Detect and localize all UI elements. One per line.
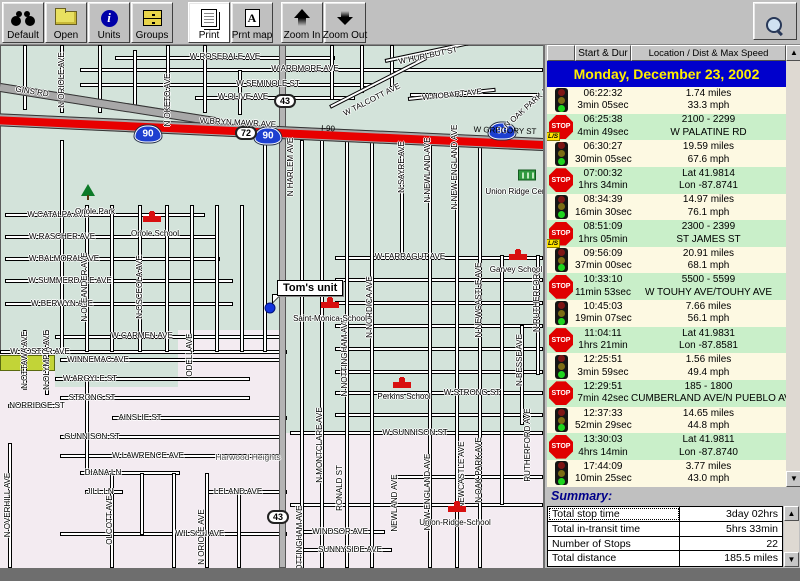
street bbox=[370, 140, 374, 568]
street-label: RUTHERFORD AVE bbox=[524, 408, 532, 481]
street-label: N NEWCASTLE AVE bbox=[475, 263, 483, 338]
street-label: N NOTTINGHAM AVE bbox=[296, 506, 304, 568]
street bbox=[240, 205, 244, 352]
street bbox=[263, 140, 267, 352]
traffic-light-icon bbox=[555, 301, 568, 325]
street-label: W ARGYLE ST bbox=[63, 375, 117, 383]
event-time-duration: 07:00:321hrs 34min bbox=[575, 168, 631, 193]
event-time-duration: 12:37:3352min 29sec bbox=[575, 408, 631, 433]
summary-row-value: 22 bbox=[680, 537, 782, 551]
event-location-speed: 20.91 miles68.1 mph bbox=[631, 248, 786, 273]
stop-event-row[interactable]: STOP10:33:1011min 53sec5500 - 5599W TOUH… bbox=[547, 273, 786, 300]
street bbox=[237, 490, 241, 568]
summary-row: Total stop time3day 02hrs bbox=[548, 507, 782, 522]
street bbox=[190, 205, 194, 352]
park-tree-icon bbox=[81, 184, 95, 200]
event-location-speed: 19.59 miles67.6 mph bbox=[631, 141, 786, 166]
event-location-speed: Lat 41.9831Lon -87.8581 bbox=[631, 328, 786, 353]
scroll-down-button[interactable]: ▼ bbox=[786, 471, 800, 487]
route-badge: 43 bbox=[274, 94, 296, 108]
event-time-duration: 10:45:0319min 07sec bbox=[575, 301, 631, 326]
stop-event-row[interactable]: STOP07:00:321hrs 34minLat 41.9814Lon -87… bbox=[547, 167, 786, 194]
street-label: W OLIVE AVE bbox=[218, 93, 269, 101]
street-label: Harwood Heights bbox=[215, 453, 280, 461]
event-time-duration: 11:04:111hrs 21min bbox=[575, 328, 631, 353]
street-label: NEWLAND AVE bbox=[391, 474, 399, 531]
event-time-duration: 06:30:2730min 05sec bbox=[575, 141, 631, 166]
street-label: STRONG ST bbox=[69, 394, 116, 402]
date-header: Monday, December 23, 2002 bbox=[547, 61, 786, 87]
transit-event-row[interactable]: 08:34:3916min 30sec14.97 miles76.1 mph bbox=[547, 194, 786, 221]
event-time-duration: 10:33:1011min 53sec bbox=[575, 274, 631, 299]
street-label: N OTTAWA AVE bbox=[21, 331, 29, 389]
interstate-90-shield: 90 bbox=[255, 128, 282, 145]
street-label: N ORIOLE AVE bbox=[58, 52, 66, 107]
summary-scroll-down-button[interactable]: ▼ bbox=[784, 552, 799, 567]
event-location-speed: 14.65 miles44.8 mph bbox=[631, 408, 786, 433]
zoom-out-button[interactable]: Zoom Out bbox=[324, 2, 366, 43]
school-door bbox=[401, 384, 403, 387]
event-time-duration: 09:56:0937min 00sec bbox=[575, 248, 631, 273]
event-time-duration: 06:22:323min 05sec bbox=[575, 88, 631, 113]
stop-sign-icon: STOP bbox=[549, 381, 573, 405]
street-label: AINSLIE ST bbox=[118, 414, 161, 422]
major-road bbox=[279, 45, 286, 568]
stop-event-row[interactable]: STOP11:04:111hrs 21minLat 41.9831Lon -87… bbox=[547, 327, 786, 354]
street bbox=[290, 503, 543, 507]
street bbox=[335, 391, 543, 395]
school-door bbox=[151, 218, 153, 221]
poi-label: Garvey School bbox=[490, 266, 542, 274]
street-label: W LAWRENCE AVE bbox=[112, 452, 184, 460]
street bbox=[300, 140, 304, 568]
event-location-speed: 7.66 miles56.1 mph bbox=[631, 301, 786, 326]
toolbar-button-label: Open bbox=[54, 30, 78, 41]
default-button[interactable]: Default bbox=[2, 2, 44, 43]
street bbox=[335, 347, 543, 351]
groups-button[interactable]: Groups bbox=[131, 2, 173, 43]
street bbox=[500, 255, 504, 505]
street bbox=[335, 413, 543, 417]
interstate-90-shield: 90 bbox=[135, 126, 162, 143]
event-location-speed: 1.74 miles33.3 mph bbox=[631, 88, 786, 113]
stop-sign-icon: STOP bbox=[549, 168, 573, 192]
event-location-speed: 2100 - 2299W PALATINE RD bbox=[631, 114, 786, 139]
summary-row-label: Total stop time bbox=[548, 507, 680, 521]
event-location-speed: 5500 - 5599W TOUHY AVE/TOUHY AVE bbox=[631, 274, 786, 299]
event-location-speed: 3.77 miles43.0 mph bbox=[631, 461, 786, 486]
traffic-light-icon bbox=[555, 461, 568, 485]
street-label: N OSCEOLA AVE bbox=[136, 255, 144, 318]
street-label: NEWCASTLE AVE bbox=[458, 442, 466, 509]
street-label: W ARDMORE AVE bbox=[271, 65, 338, 73]
street-label: N RUTHERFORD bbox=[533, 268, 541, 332]
street bbox=[60, 140, 64, 352]
street bbox=[335, 370, 543, 374]
street-label: N SAYRE AVE bbox=[398, 141, 406, 193]
event-location-speed: 185 - 1800CUMBERLAND AVE/N PUEBLO AV bbox=[631, 381, 786, 406]
event-location-speed: 14.97 miles76.1 mph bbox=[631, 194, 786, 219]
magnifier-icon bbox=[766, 17, 784, 35]
event-location-speed: 1.56 miles49.4 mph bbox=[631, 354, 786, 379]
street bbox=[172, 473, 176, 568]
transit-event-row[interactable]: 10:45:0319min 07sec7.66 miles56.1 mph bbox=[547, 300, 786, 327]
zoomin-icon bbox=[294, 9, 310, 27]
event-time-duration: 06:25:384min 49sec bbox=[575, 114, 631, 139]
street bbox=[390, 45, 394, 87]
event-time-duration: 12:29:517min 42sec bbox=[575, 381, 631, 406]
street-label: N NOTTINGHAM AVE bbox=[341, 318, 349, 397]
street-label: LELAND AVE bbox=[214, 488, 262, 496]
street-label: WINDSOR AVE bbox=[312, 528, 368, 536]
summary-row-label: Total in-transit time bbox=[548, 522, 680, 536]
info-icon: i bbox=[101, 10, 118, 27]
traffic-light-icon bbox=[555, 195, 568, 219]
stop-sign-icon: STOP bbox=[549, 435, 573, 459]
toolbar-button-label: Groups bbox=[136, 30, 169, 41]
street-label: N NEW ENGLAND AVE bbox=[451, 125, 459, 210]
event-location-speed: 2300 - 2399ST JAMES ST bbox=[631, 221, 786, 246]
toolbar-button-label: Prnt map bbox=[232, 30, 273, 41]
stop-sign-icon: STOP bbox=[549, 328, 573, 352]
event-time-duration: 08:51:091hrs 05min bbox=[575, 221, 631, 246]
street-label: W CARMEN AVE bbox=[111, 332, 173, 340]
poi-label: Perkins School bbox=[377, 393, 430, 401]
street bbox=[360, 45, 364, 93]
street-label: W SUMMERDALE AVE bbox=[28, 277, 111, 285]
toolbar-button-label: Zoom In bbox=[284, 30, 321, 41]
scroll-up-button[interactable]: ▲ bbox=[786, 45, 800, 61]
column-header-icon[interactable] bbox=[547, 45, 575, 61]
binoculars-icon bbox=[11, 10, 35, 26]
street-label: OLCOTT AVE bbox=[106, 495, 114, 545]
toolbar: DefaultOpeniUnitsGroupsPrintAPrnt mapZoo… bbox=[0, 0, 800, 45]
street bbox=[165, 205, 169, 352]
street-label: N OAK PARK AVE bbox=[503, 80, 543, 130]
route-badge: 43 bbox=[267, 510, 289, 524]
street-label: W ROSEDALE AVE bbox=[190, 53, 261, 61]
street-label: N OVERHILL AVE bbox=[4, 473, 12, 537]
school-icon bbox=[143, 210, 161, 222]
summary-row-value: 185.5 miles bbox=[680, 551, 782, 566]
traffic-light-icon bbox=[555, 408, 568, 432]
summary-scrollbar-track[interactable] bbox=[784, 521, 799, 552]
limited-stop-badge: L/S bbox=[547, 239, 560, 248]
traffic-light-icon bbox=[555, 248, 568, 272]
street-label: W GUNNISON ST bbox=[382, 429, 447, 437]
street-label: RONALD ST bbox=[336, 465, 344, 511]
street-label: W STRONG ST bbox=[444, 389, 500, 397]
event-time-duration: 08:34:3916min 30sec bbox=[575, 194, 631, 219]
street-label: W RASCHER AVE bbox=[29, 233, 95, 241]
vehicle-tracking-app-window: DefaultOpeniUnitsGroupsPrintAPrnt mapZoo… bbox=[0, 0, 800, 581]
event-time-duration: 12:25:513min 59sec bbox=[575, 354, 631, 379]
street-label: DIANA LN bbox=[85, 469, 121, 477]
event-list: 06:22:323min 05sec1.74 miles33.3 mphSTOP… bbox=[547, 87, 786, 487]
event-location-speed: Lat 41.9811Lon -87.8740 bbox=[631, 434, 786, 459]
street bbox=[478, 140, 482, 568]
school-door bbox=[456, 508, 458, 511]
street-label: I-90 bbox=[321, 125, 335, 134]
limited-stop-badge: L/S bbox=[547, 132, 560, 141]
street-label: N NORDICA AVE bbox=[366, 276, 374, 338]
street-label: N MONTCLARE AVE bbox=[316, 407, 324, 482]
street-label: W SEMINOLE ST bbox=[236, 80, 300, 88]
summary-row-value: 5hrs 33min bbox=[680, 522, 782, 536]
school-icon bbox=[448, 500, 466, 512]
summary-row: Total distance185.5 miles bbox=[548, 551, 782, 566]
school-door bbox=[329, 304, 331, 307]
traffic-light-icon bbox=[555, 88, 568, 112]
map-view[interactable]: 909090724343 W ROSEDALE AVEW ARDMORE AVE… bbox=[0, 45, 543, 568]
stop-event-row[interactable]: STOPL/S08:51:091hrs 05min2300 - 2399ST J… bbox=[547, 220, 786, 247]
open-button[interactable]: Open bbox=[45, 2, 87, 43]
event-location-speed: Lat 41.9814Lon -87.8741 bbox=[631, 168, 786, 193]
transit-event-row[interactable]: 09:56:0937min 00sec20.91 miles68.1 mph bbox=[547, 247, 786, 274]
street bbox=[85, 375, 89, 475]
zoom-in-button[interactable]: Zoom In bbox=[281, 2, 323, 43]
column-header-location[interactable]: Location / Dist & Max Speed bbox=[631, 45, 786, 61]
summary-row-label: Number of Stops bbox=[548, 537, 680, 551]
scrollbar-track[interactable] bbox=[786, 61, 800, 471]
street-label: W HOBART AVE bbox=[422, 88, 483, 102]
column-header-start-dur[interactable]: Start & Dur bbox=[575, 45, 631, 61]
street bbox=[23, 45, 27, 110]
event-time-duration: 13:30:034hrs 14min bbox=[575, 434, 631, 459]
school-icon bbox=[393, 376, 411, 388]
cemetery-icon bbox=[518, 170, 536, 181]
summary-row: Number of Stops22 bbox=[548, 537, 782, 552]
school-door bbox=[517, 256, 519, 259]
vehicle-position-dot[interactable] bbox=[265, 303, 276, 314]
street-label: N OLYMPIA AVE bbox=[43, 330, 51, 390]
street-label: N BESSE AVE bbox=[516, 334, 524, 386]
stop-event-row[interactable]: STOP13:30:034hrs 14minLat 41.9811Lon -87… bbox=[547, 433, 786, 460]
folder-icon bbox=[55, 11, 77, 25]
street-label: SUNNYSIDE AVE bbox=[318, 546, 382, 554]
poi-label: Oriole Park bbox=[75, 208, 115, 216]
summary-row-label: Total distance bbox=[548, 551, 680, 566]
street bbox=[215, 205, 219, 352]
poi-label: Union Ridge Cem bbox=[485, 188, 543, 196]
transit-event-row[interactable]: 12:25:513min 59sec1.56 miles49.4 mph bbox=[547, 353, 786, 380]
school-icon bbox=[509, 248, 527, 260]
street-label: N ORIOLE AVE bbox=[198, 509, 206, 564]
print-map-button[interactable]: APrnt map bbox=[231, 2, 273, 43]
street-label: GUNNISON ST bbox=[64, 433, 120, 441]
poi-label: Oriole School bbox=[131, 230, 179, 238]
stop-event-row[interactable]: STOPL/S06:25:384min 49sec2100 - 2299W PA… bbox=[547, 114, 786, 141]
poi-label: Union-Ridge-School bbox=[419, 519, 491, 527]
toolbar-button-label: Zoom Out bbox=[323, 30, 367, 41]
street-label: N OAK PARK AVE bbox=[475, 437, 483, 503]
traffic-light-icon bbox=[555, 355, 568, 379]
zoomout-icon bbox=[337, 11, 353, 25]
street-label: W FARRAGUT AVE bbox=[375, 253, 445, 261]
window-bottom-edge bbox=[0, 568, 800, 581]
street-label: N HARLEM AVE bbox=[287, 138, 295, 197]
toolbar-button-label: Print bbox=[199, 30, 220, 41]
magnifier-button[interactable] bbox=[753, 2, 797, 40]
print-button[interactable]: Print bbox=[188, 2, 230, 43]
stop-sign-icon: STOP bbox=[549, 275, 573, 299]
toolbar-button-label: Units bbox=[98, 30, 121, 41]
transit-event-row[interactable]: 06:22:323min 05sec1.74 miles33.3 mph bbox=[547, 87, 786, 114]
poi-label: Saint-Monica-School bbox=[293, 315, 367, 323]
unit-callout[interactable]: Tom's unit bbox=[277, 280, 343, 296]
drawers-icon bbox=[143, 10, 162, 26]
school-icon bbox=[321, 296, 339, 308]
toolbar-button-label: Default bbox=[7, 30, 39, 41]
summary-row-value: 3day 02hrs bbox=[680, 507, 782, 521]
summary-scroll-up-button[interactable]: ▲ bbox=[784, 506, 799, 521]
summary-row: Total in-transit time5hrs 33min bbox=[548, 522, 782, 537]
street-label: N OLEANDER AVE bbox=[81, 252, 89, 321]
street-label: N NEWLAND AVE bbox=[424, 137, 432, 202]
street-label: NORRIDGE ST bbox=[9, 402, 65, 410]
printmap-icon: A bbox=[245, 9, 260, 27]
stop-event-row[interactable]: STOP12:29:517min 42sec185 - 1800CUMBERLA… bbox=[547, 380, 786, 407]
street bbox=[395, 475, 543, 479]
units-button[interactable]: iUnits bbox=[88, 2, 130, 43]
summary-title: Summary: bbox=[551, 489, 612, 503]
street-label: ODELL AVE bbox=[186, 333, 194, 376]
summary-table: Total stop time3day 02hrsTotal in-transi… bbox=[547, 506, 783, 567]
transit-event-row[interactable]: 06:30:2730min 05sec19.59 miles67.6 mph bbox=[547, 140, 786, 167]
street-label: N OKETO AVE bbox=[164, 73, 172, 126]
transit-event-row[interactable]: 17:44:0910min 25sec3.77 miles43.0 mph bbox=[547, 460, 786, 487]
trip-log-panel: Start & Dur Location / Dist & Max Speed … bbox=[543, 45, 800, 568]
traffic-light-icon bbox=[555, 142, 568, 166]
street bbox=[140, 473, 144, 535]
street-label: WINNEMAC AVE bbox=[67, 356, 129, 364]
route-badge: 72 bbox=[235, 126, 257, 140]
street bbox=[320, 140, 324, 568]
print-icon bbox=[201, 9, 217, 27]
transit-event-row[interactable]: 12:37:3352min 29sec14.65 miles44.8 mph bbox=[547, 407, 786, 434]
event-time-duration: 17:44:0910min 25sec bbox=[575, 461, 631, 486]
